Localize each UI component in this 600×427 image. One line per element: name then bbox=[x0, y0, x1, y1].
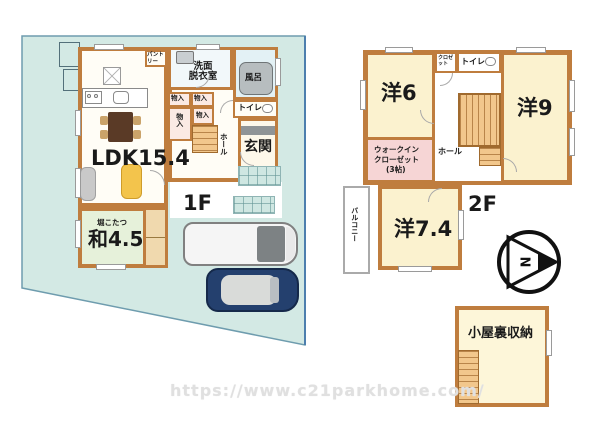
washitsu-closet-divider bbox=[146, 237, 165, 238]
toilet-icon bbox=[485, 57, 496, 66]
wic-label-line3: (3帖) bbox=[386, 166, 406, 174]
car-sedan bbox=[206, 268, 299, 312]
yo9-label: 洋9 bbox=[517, 97, 553, 120]
yo74-label: 洋7.4 bbox=[394, 218, 452, 241]
dining-chair bbox=[100, 130, 108, 139]
sofa-gray bbox=[80, 167, 96, 201]
window bbox=[94, 44, 124, 50]
window bbox=[75, 168, 81, 198]
window bbox=[546, 330, 552, 356]
storage-label: 物入 bbox=[196, 112, 209, 119]
pantry-label: パントリー bbox=[147, 52, 166, 65]
window bbox=[75, 110, 81, 136]
window bbox=[458, 210, 464, 240]
window bbox=[75, 220, 81, 248]
closet-2f-label: クロゼット bbox=[438, 55, 453, 67]
yo6-label: 洋6 bbox=[381, 82, 417, 105]
washing-machine-icon bbox=[176, 51, 194, 64]
stairs-1f bbox=[192, 125, 218, 153]
window bbox=[516, 47, 546, 53]
storage-label: 物入 bbox=[171, 95, 184, 102]
toilet-icon bbox=[262, 104, 273, 113]
hall-1f-label: ホール bbox=[219, 133, 227, 156]
attic-label: 小屋裏収納 bbox=[468, 327, 533, 341]
window bbox=[569, 128, 575, 156]
balcony-label: バルコニー bbox=[350, 207, 358, 242]
watermark-url: https://www.c21parkhome.com/ bbox=[170, 381, 485, 400]
porch-tiles bbox=[238, 166, 281, 186]
car-van bbox=[183, 222, 298, 266]
approach-tiles bbox=[233, 196, 275, 214]
window bbox=[275, 58, 281, 86]
floor-plan-canvas: 洗面 脱衣室 風呂 トイレ パントリー 物入 物入 物入 物入 ホール 玄関 L… bbox=[0, 0, 600, 427]
wic-label-line1: ウォークイン bbox=[374, 146, 419, 154]
wic-label-line2: クローゼット bbox=[374, 156, 419, 164]
toilet-2f-label: トイレ bbox=[461, 58, 485, 67]
stove-burner bbox=[94, 94, 98, 98]
dining-chair bbox=[133, 116, 141, 125]
window bbox=[360, 80, 366, 110]
compass: N bbox=[494, 227, 564, 297]
compass-north-label: N bbox=[517, 257, 532, 268]
car-van-windshield bbox=[257, 226, 285, 262]
storage-label: 物入 bbox=[194, 95, 207, 102]
car-sedan-cabin bbox=[221, 275, 277, 305]
window bbox=[196, 44, 220, 50]
car-sedan-windshield bbox=[270, 277, 279, 303]
stairs-2f bbox=[458, 93, 501, 147]
dining-chair bbox=[133, 130, 141, 139]
window bbox=[569, 80, 575, 112]
kotatsu-label: 堀こたつ bbox=[97, 219, 127, 227]
dining-table bbox=[108, 112, 133, 142]
hall-2f-label: ホール bbox=[438, 148, 462, 157]
window bbox=[96, 264, 126, 270]
refrigerator-space bbox=[103, 67, 121, 85]
shoe-cabinet bbox=[241, 126, 275, 135]
window bbox=[385, 47, 413, 53]
window bbox=[398, 266, 432, 272]
dining-chair bbox=[100, 116, 108, 125]
floor1-label: 1F bbox=[183, 192, 212, 215]
floor2-label: 2F bbox=[468, 193, 497, 216]
ldk-label: LDK15.4 bbox=[91, 147, 190, 170]
washitsu-label: 和4.5 bbox=[88, 228, 143, 250]
sink-icon bbox=[113, 91, 129, 104]
bath-label: 風呂 bbox=[245, 74, 262, 83]
storage-label: 物入 bbox=[175, 113, 183, 127]
toilet-1f-label: トイレ bbox=[238, 104, 262, 113]
outdoor-unit bbox=[59, 42, 80, 67]
car-van-hood bbox=[286, 227, 295, 261]
stairs-2f-lower bbox=[479, 147, 501, 166]
stove-burner bbox=[87, 94, 91, 98]
